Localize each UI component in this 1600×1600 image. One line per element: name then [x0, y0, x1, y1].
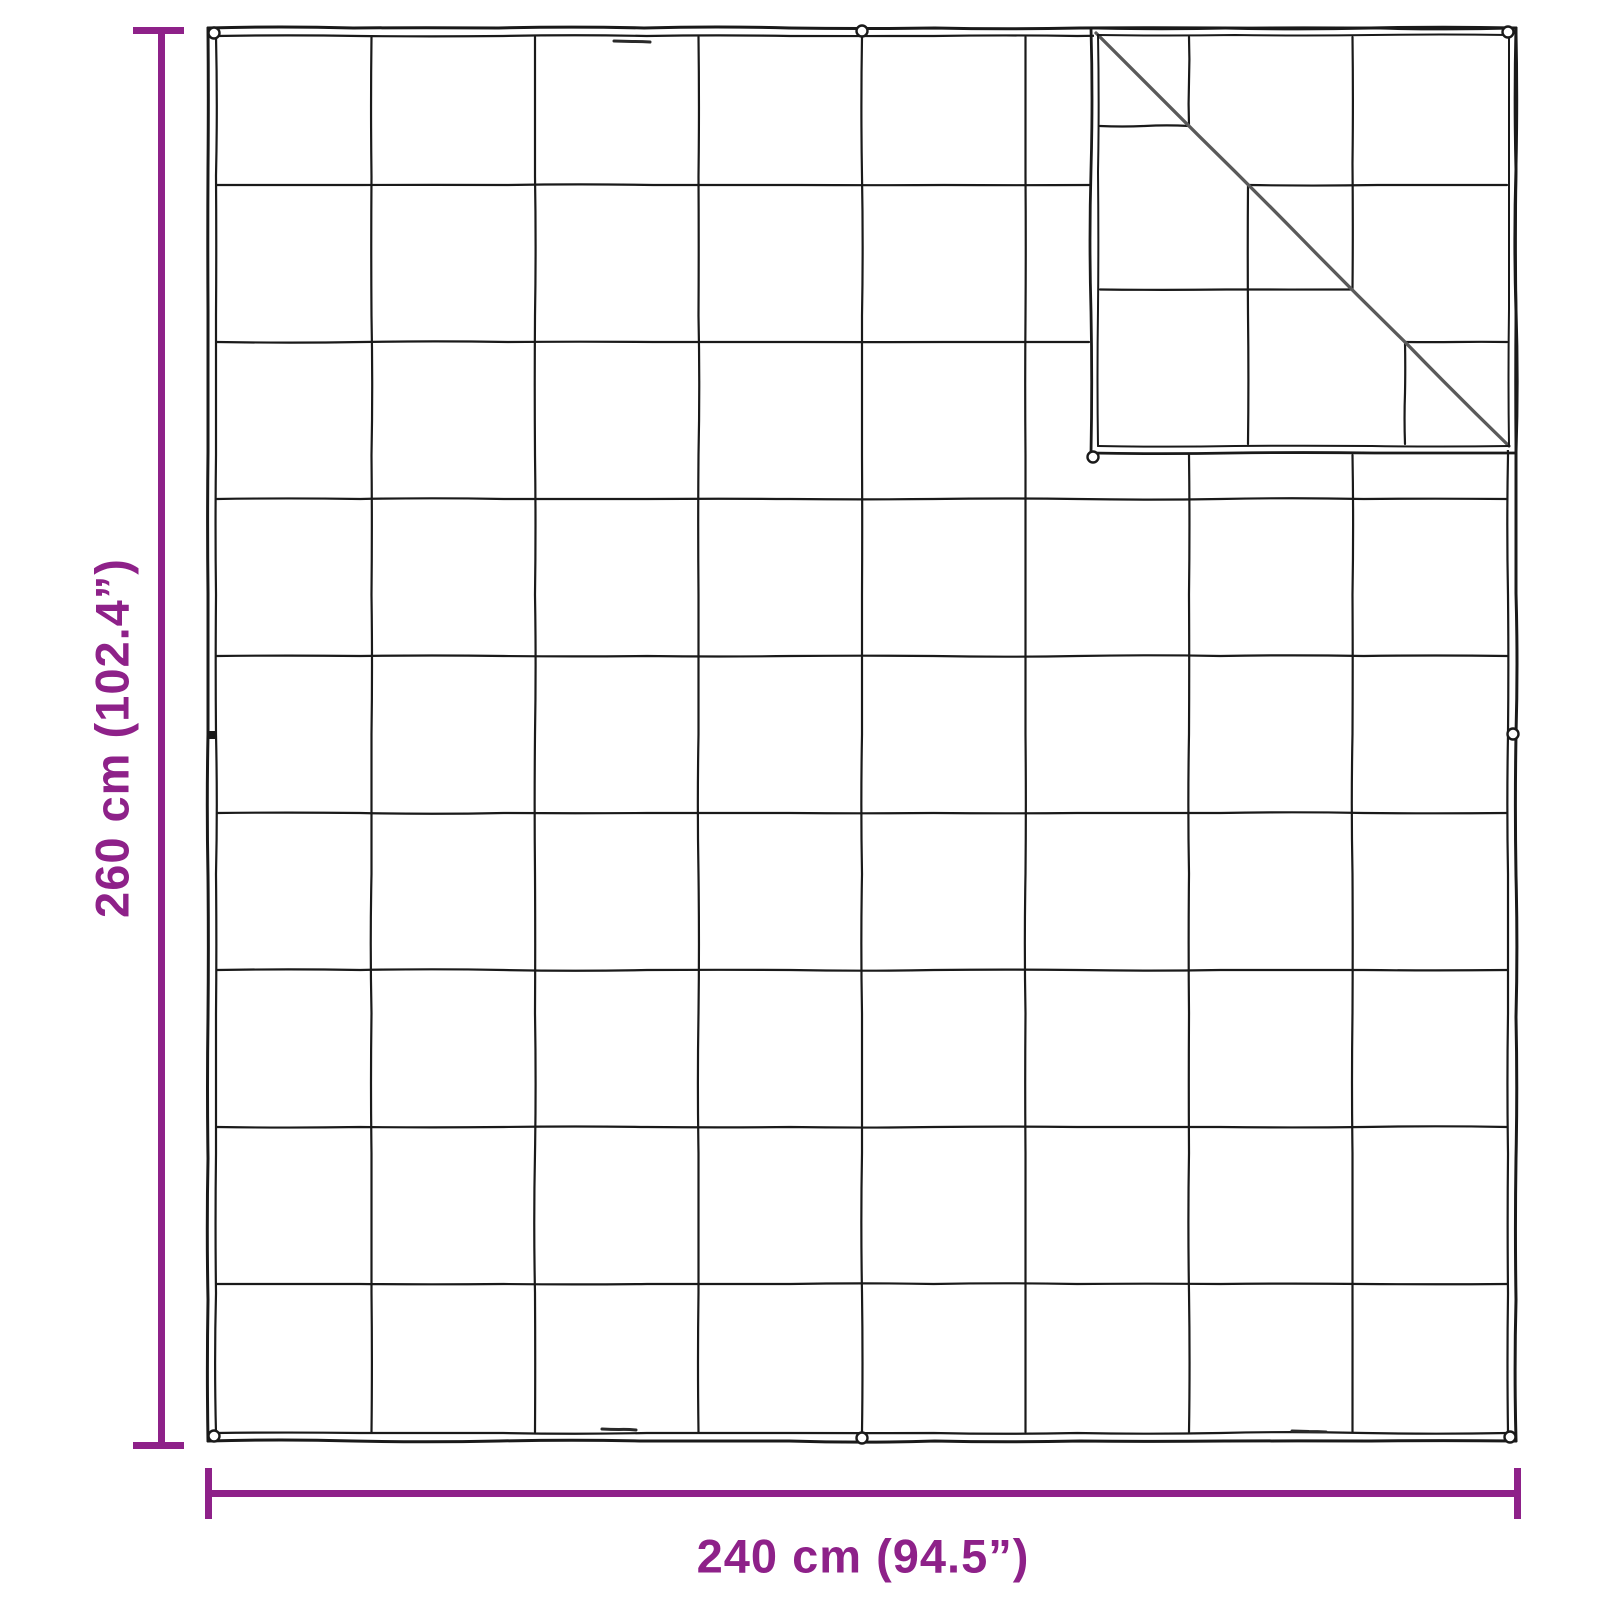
width-dimension-label: 240 cm (94.5”) [697, 1530, 1030, 1583]
stitch-mark [1292, 1431, 1326, 1432]
folded-corner-outline-outer [1091, 28, 1516, 29]
folded-corner-outline-inner [1509, 35, 1510, 446]
width-dimension-left-cap [205, 1468, 212, 1519]
flap-quilt-line [1189, 37, 1190, 126]
quilt-grid-vertical-line [1352, 455, 1353, 1432]
height-dimension: 260 cm (102.4”) [86, 27, 185, 1449]
folded-corner-outline-inner [1098, 35, 1509, 36]
height-dimension-bottom-cap [133, 1442, 184, 1449]
folded-corner-outline-outer [1090, 28, 1092, 453]
quilt-grid-vertical-line [861, 37, 862, 1432]
quilt-grid-vertical-line [371, 37, 372, 1432]
quilt-grid-vertical-line [534, 37, 535, 1432]
folded-corner-outline-inner [1098, 446, 1509, 447]
stitch-mark [602, 1429, 636, 1430]
flap-quilt-line [1100, 125, 1189, 126]
blanket [207, 26, 1518, 1444]
product-dimension-diagram: 260 cm (102.4”) 240 cm (94.5”) [0, 0, 1600, 1600]
quilt-grid-horizontal-line [217, 812, 1507, 813]
quilt-grid-vertical-line [1188, 455, 1189, 1432]
edge-loop-bottom-middle [857, 1433, 868, 1444]
corner-loop-top-right [1503, 27, 1514, 38]
folded-corner-outline-outer [1516, 28, 1517, 453]
quilt-grid-horizontal-line [217, 655, 1507, 656]
quilt-grid-horizontal-line [217, 1283, 1507, 1284]
diagram-canvas: 260 cm (102.4”) 240 cm (94.5”) [0, 0, 1600, 1600]
edge-loop-left-middle [209, 731, 216, 739]
folded-corner-outline-outer [1091, 453, 1516, 454]
folded-corner-outline-inner [1098, 35, 1099, 446]
height-dimension-label: 260 cm (102.4”) [86, 558, 139, 918]
width-dimension-right-cap [1514, 1468, 1521, 1519]
edge-loop-top-middle [857, 26, 868, 37]
width-dimension: 240 cm (94.5”) [205, 1468, 1521, 1583]
blanket-outline-outer [207, 28, 208, 1441]
quilt-grid-vertical-line [1025, 37, 1026, 1432]
quilt-grid-horizontal-line [217, 184, 1089, 185]
quilt-grid-horizontal-line [217, 1126, 1507, 1127]
height-dimension-line [158, 30, 165, 1446]
flap-quilt-line [1248, 185, 1507, 186]
edge-loop-right-middle [1508, 729, 1519, 740]
flap-corner-loop [1088, 452, 1099, 463]
quilt-grid-vertical-line [698, 37, 699, 1432]
quilt-grid-horizontal-line [217, 341, 1089, 342]
stitch-mark [614, 41, 650, 42]
corner-loop-bottom-right [1505, 1432, 1516, 1443]
flap-quilt-line [1248, 185, 1249, 444]
corner-loop-bottom-left [209, 1431, 220, 1442]
corner-loop-top-left [209, 28, 220, 39]
flap-quilt-line [1405, 342, 1406, 444]
width-dimension-line [205, 1490, 1521, 1497]
height-dimension-top-cap [133, 27, 184, 34]
quilt-grid-horizontal-line [217, 498, 1507, 499]
